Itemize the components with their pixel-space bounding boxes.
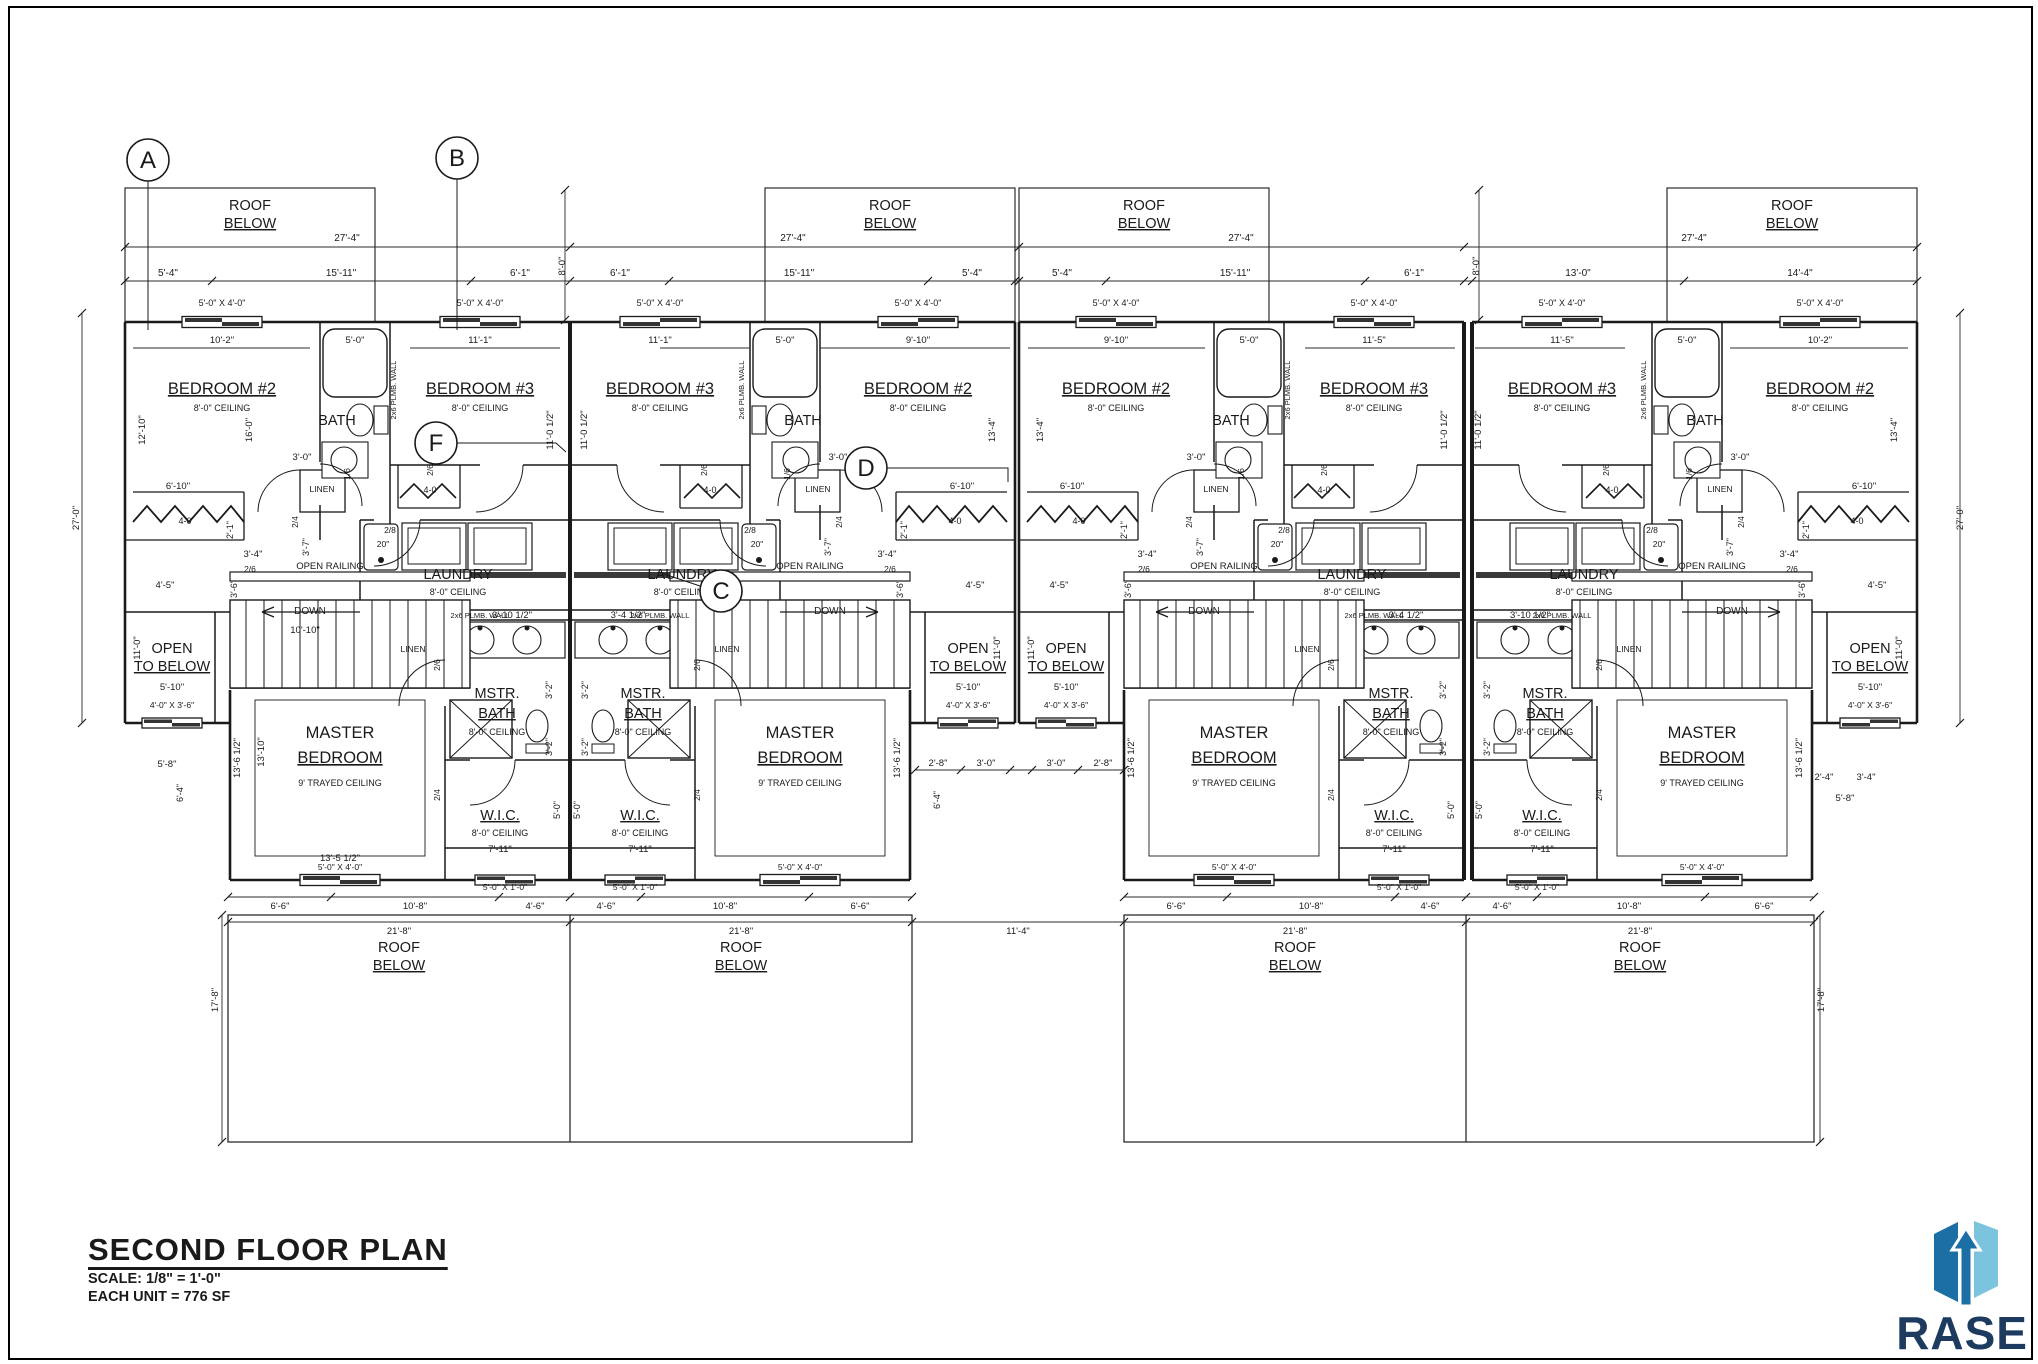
ceiling-note: 9' TRAYED CEILING: [1660, 778, 1743, 788]
dim-label: 3'-2": [580, 738, 590, 756]
dim-label: 7'-11": [628, 844, 652, 855]
dim-label: MSTR.: [474, 686, 519, 702]
dim-label: 2'-1": [1119, 521, 1129, 539]
dim-label: 5'-10": [1054, 682, 1078, 693]
dim-label: 10'-8": [713, 901, 737, 912]
dim-label: 3'-0": [1731, 452, 1750, 463]
dim-label: 6'-6": [271, 901, 290, 912]
room-label: BEDROOM #3: [1508, 380, 1616, 398]
dim-label: 2x6 PLMB. WALL: [451, 611, 510, 620]
roof-below-rects: [228, 915, 1814, 1142]
dim-label: 2/6: [692, 659, 702, 671]
room-label: BEDROOM #3: [606, 380, 714, 398]
room-label: BEDROOM: [1659, 749, 1744, 767]
dim-label: 6'-6": [851, 901, 870, 912]
dim-label: OPEN: [947, 641, 988, 657]
dim-label: 13'-4": [987, 418, 998, 442]
dim-label: 2/4: [432, 789, 442, 801]
dim-label: 3'-2": [580, 681, 590, 699]
room-label: BELOW: [715, 958, 768, 974]
dim-label: ROOF: [1771, 198, 1813, 214]
dim-label: 6'-4": [175, 784, 185, 802]
ceiling-note: 8'-0" CEILING: [1556, 587, 1612, 597]
dim-label: 6'-10": [1852, 481, 1876, 492]
dim-label: 3'-4": [1780, 549, 1799, 560]
dim-label: 2/6: [1319, 464, 1329, 476]
dim-label: LINEN: [714, 644, 739, 654]
dim-label: 10'-8": [1299, 901, 1323, 912]
dim-label: 3'-7": [823, 538, 833, 556]
dim-label: LINEN: [1294, 644, 1319, 654]
dim-label: 5'-8": [158, 759, 177, 770]
dim-label: LAUNDRY: [1317, 567, 1386, 583]
dim-label: 5'-0" X 1'-0": [483, 882, 527, 892]
dim-label: 5'-0" X 4'-0": [318, 862, 362, 872]
dim-label: ROOF: [1619, 940, 1661, 956]
dim-label: 2/6: [1594, 659, 1604, 671]
dim-label: 10'-8": [403, 901, 427, 912]
room-label: W.I.C.: [1522, 808, 1561, 824]
dim-label: 2/8: [744, 525, 756, 535]
dim-label: BATH: [1686, 413, 1724, 429]
dim-label: 11'-1": [468, 335, 492, 346]
dim-label: 4'-0" X 3'-6": [1044, 700, 1088, 710]
dim-label: ROOF: [1274, 940, 1316, 956]
dim-label: 14'-4": [1787, 268, 1813, 279]
dim-label: LINEN: [1616, 644, 1641, 654]
dim-label: 8'-0": [1471, 257, 1482, 276]
dim-label: 4-0: [1317, 485, 1330, 495]
dim-label: 27'-0": [71, 506, 82, 530]
dim-label: 6'-10": [166, 481, 190, 492]
dim-label: 27'-4": [1228, 233, 1254, 244]
room-label: BEDROOM #3: [1320, 380, 1428, 398]
dim-label: 13'-6 1/2": [1794, 738, 1805, 778]
dim-label: 4'-6": [1421, 901, 1440, 912]
dim-label: 1/6: [342, 468, 352, 480]
dim-label: DOWN: [1716, 606, 1748, 617]
dim-label: BATH: [1212, 413, 1250, 429]
dim-label: 5'-0" X 1'-0": [1515, 882, 1559, 892]
dim-label: 3'-0": [1187, 452, 1206, 463]
dim-label: MSTR.: [620, 686, 665, 702]
dim-label: 3'-7": [301, 538, 311, 556]
dim-label: 5'-4": [1052, 268, 1072, 279]
dim-label: 21'-8": [1283, 926, 1307, 937]
ceiling-note: 8'-0" CEILING: [472, 828, 528, 838]
dim-label: 4'-0" X 3'-6": [1848, 700, 1892, 710]
dim-label: 3'-0": [1047, 758, 1066, 769]
dim-label: 21'-8": [387, 926, 411, 937]
dim-label: 3'-6": [1123, 580, 1133, 598]
dim-label: 2/8: [384, 525, 396, 535]
rase-logo-text: RASE: [1828, 1310, 2028, 1356]
room-label: BEDROOM #2: [864, 380, 972, 398]
dim-label: 2/6: [1601, 464, 1611, 476]
ceiling-note: 8'-0" CEILING: [469, 727, 525, 737]
dim-label: OPEN RAILING: [776, 561, 844, 572]
room-label: BATH: [1526, 706, 1564, 722]
dim-label: 2'-1": [225, 521, 235, 539]
dim-label: 2/6: [1326, 659, 1336, 671]
dim-label: 4'-6": [597, 901, 616, 912]
ceiling-note: 8'-0" CEILING: [1534, 403, 1590, 413]
dim-label: 2/8: [1646, 525, 1658, 535]
dim-label: 5'-0" X 4'-0": [1212, 862, 1256, 872]
dim-label: 2/4: [1326, 789, 1336, 801]
dim-label: 11'-0": [992, 636, 1003, 660]
ceiling-note: 8'-0" CEILING: [1517, 727, 1573, 737]
dim-label: 3'-6": [229, 580, 239, 598]
dim-label: 3'-4": [1138, 549, 1157, 560]
dim-label: 5'-0" X 4'-0": [895, 298, 942, 308]
dim-label: 5'-0" X 1'-0": [613, 882, 657, 892]
room-label: BELOW: [864, 216, 917, 232]
dim-label: 4'-6": [1493, 901, 1512, 912]
dim-label: 2/6: [425, 464, 435, 476]
dim-label: 16'-0": [244, 418, 255, 442]
room-label: BELOW: [1269, 958, 1322, 974]
dim-label: 11'-0": [132, 636, 143, 660]
dim-label: 11'-1": [648, 335, 672, 346]
ceiling-note: 8'-0" CEILING: [1792, 403, 1848, 413]
ceiling-note: 8'-0" CEILING: [1366, 828, 1422, 838]
dim-label: 6'-1": [1404, 268, 1424, 279]
dim-label: 2x6 PLMB. WALL: [1639, 361, 1648, 420]
dim-label: 12'-10": [137, 415, 148, 444]
marker-leader-line: [887, 468, 1008, 482]
dim-label: ROOF: [869, 198, 911, 214]
dim-label: 3'-0": [293, 452, 312, 463]
dim-label: 11'-0 1/2": [1473, 410, 1484, 449]
dim-label: 27'-0": [1955, 506, 1966, 530]
room-label: TO BELOW: [1832, 659, 1909, 675]
dim-label: 11'-0 1/2": [1439, 410, 1450, 449]
room-label: BEDROOM #2: [168, 380, 276, 398]
dim-label: 4'-5": [156, 580, 175, 591]
rase-logo: RASE: [1828, 1216, 2028, 1356]
dim-label: 1/6: [1236, 468, 1246, 480]
dim-label: 11'-5": [1362, 335, 1386, 346]
room-label: BEDROOM #2: [1766, 380, 1874, 398]
dim-label: 5'-0" X 1'-0": [1377, 882, 1421, 892]
dim-label: 10'-2": [1808, 335, 1832, 346]
room-label: W.I.C.: [620, 808, 659, 824]
ceiling-note: 9' TRAYED CEILING: [1192, 778, 1275, 788]
dim-label: 10'-10": [290, 625, 319, 636]
dim-label: 20": [1271, 539, 1283, 549]
dim-label: LINEN: [400, 644, 425, 654]
dim-label: 2/6: [884, 564, 896, 574]
dim-label: 2/6: [699, 464, 709, 476]
room-label: BATH: [478, 706, 516, 722]
dim-label: 6'-10": [1060, 481, 1084, 492]
dim-label: DOWN: [294, 606, 326, 617]
dim-label: 15'-11": [1220, 268, 1251, 279]
ceiling-note: 8'-0" CEILING: [1514, 828, 1570, 838]
dim-label: 9'-10": [1104, 335, 1128, 346]
dim-label: 11'-0 1/2": [545, 410, 556, 449]
dim-label: LINEN: [1707, 484, 1732, 494]
dim-label: 2x6 PLMB. WALL: [737, 361, 746, 420]
ceiling-note: 8'-0" CEILING: [1324, 587, 1380, 597]
dim-label: 3'-2": [1438, 681, 1448, 699]
dim-label: 17'-8": [1816, 988, 1827, 1012]
room-label: BELOW: [373, 958, 426, 974]
dim-label: 3'-0": [829, 452, 848, 463]
dim-label: 2'-1": [899, 521, 909, 539]
room-label: BELOW: [1766, 216, 1819, 232]
section-marker-letter: C: [712, 578, 729, 605]
dim-label: BATH: [318, 413, 356, 429]
dim-label: 27'-4": [1681, 233, 1707, 244]
ceiling-note: 8'-0" CEILING: [615, 727, 671, 737]
room-label: BEDROOM #2: [1062, 380, 1170, 398]
dim-label: 2x6 PLMB. WALL: [1345, 611, 1404, 620]
dim-label: 3'-2": [1482, 738, 1492, 756]
dim-label: MSTR.: [1368, 686, 1413, 702]
dim-label: 2x6 PLMB. WALL: [389, 361, 398, 420]
dim-label: 7'-11": [1382, 844, 1406, 855]
dim-label: 3'-6": [895, 580, 905, 598]
dim-label: 5'-0": [1678, 335, 1697, 346]
dim-label: 2'-4": [1815, 772, 1834, 783]
dim-label: 2x6 PLMB. WALL: [631, 611, 690, 620]
dim-label: 5'-0" X 4'-0": [637, 298, 684, 308]
dim-label: 6'-6": [1167, 901, 1186, 912]
dim-label: 10'-2": [210, 335, 234, 346]
dim-label: 5'-0": [572, 801, 582, 819]
dim-label: 15'-11": [784, 268, 815, 279]
room-label: TO BELOW: [134, 659, 211, 675]
dim-label: 4-0: [1850, 516, 1863, 526]
dim-label: 5'-0": [1474, 801, 1484, 819]
dim-label: 4'-6": [526, 901, 545, 912]
dim-label: OPEN RAILING: [296, 561, 364, 572]
floor-plan-drawing: ROOFBELOWROOFBELOWROOFBELOWROOFBELOWROOF…: [0, 0, 2038, 1364]
dim-label: 3'-4": [878, 549, 897, 560]
dim-label: LINEN: [805, 484, 830, 494]
dim-label: 13'-6 1/2": [232, 738, 243, 778]
dim-label: 2/6: [1786, 564, 1798, 574]
dim-label: 1/6: [1684, 468, 1694, 480]
dim-label: 5'-0" X 4'-0": [1351, 298, 1398, 308]
dim-label: 4'-5": [966, 580, 985, 591]
dim-label: 4-0: [703, 485, 716, 495]
room-label: TO BELOW: [1028, 659, 1105, 675]
dim-label: 20": [1653, 539, 1665, 549]
dim-label: 2/4: [1594, 789, 1604, 801]
dim-label: 3'-2": [1482, 681, 1492, 699]
dim-label: MASTER: [766, 724, 835, 742]
room-label: W.I.C.: [480, 808, 519, 824]
dim-label: MASTER: [1200, 724, 1269, 742]
section-marker-letter: D: [857, 455, 874, 482]
dim-label: 5'-0" X 4'-0": [199, 298, 246, 308]
room-label: BATH: [1372, 706, 1410, 722]
dim-label: 6'-10": [950, 481, 974, 492]
room-label: BELOW: [224, 216, 277, 232]
section-marker-letter: A: [140, 147, 156, 174]
dim-label: 21'-8": [729, 926, 753, 937]
dim-label: 5'-0" X 4'-0": [1539, 298, 1586, 308]
dim-label: 3'-7": [1195, 538, 1205, 556]
dim-label: 10'-8": [1617, 901, 1641, 912]
dim-label: MASTER: [306, 724, 375, 742]
dim-label: 27'-4": [334, 233, 360, 244]
ceiling-note: 8'-0" CEILING: [430, 587, 486, 597]
dim-label: 5'-0": [552, 801, 562, 819]
dim-label: 4'-0" X 3'-6": [946, 700, 990, 710]
dim-label: MSTR.: [1522, 686, 1567, 702]
dim-label: 5'-8": [1836, 793, 1855, 804]
dim-label: LAUNDRY: [1549, 567, 1618, 583]
dim-label: 20": [751, 539, 763, 549]
dim-label: ROOF: [1123, 198, 1165, 214]
room-label: BEDROOM: [1191, 749, 1276, 767]
ceiling-note: 8'-0" CEILING: [612, 828, 668, 838]
title-block: SECOND FLOOR PLAN SCALE: 1/8" = 1'-0" EA…: [88, 1232, 448, 1306]
dim-label: 5'-10": [1858, 682, 1882, 693]
dim-label: 2/4: [290, 516, 300, 528]
dim-label: 6'-6": [1755, 901, 1774, 912]
room-label: BEDROOM #3: [426, 380, 534, 398]
section-marker-letter: B: [449, 145, 465, 172]
dim-label: OPEN: [1045, 641, 1086, 657]
dim-label: 2/4: [834, 516, 844, 528]
dim-label: 5'-0": [346, 335, 365, 346]
room-label: W.I.C.: [1374, 808, 1413, 824]
dim-label: 6'-1": [510, 268, 530, 279]
dim-label: OPEN: [151, 641, 192, 657]
dim-label: 11'-0": [1026, 636, 1037, 660]
dim-label: 13'-10": [256, 737, 267, 766]
dim-label: 1/6: [782, 468, 792, 480]
ceiling-note: 9' TRAYED CEILING: [758, 778, 841, 788]
dim-label: 2/4: [1184, 516, 1194, 528]
dim-label: 5'-10": [160, 682, 184, 693]
dim-label: 4-0: [1605, 485, 1618, 495]
dim-label: 3'-0": [977, 758, 996, 769]
dim-label: 5'-0": [1240, 335, 1259, 346]
dim-label: 6'-4": [932, 791, 942, 809]
dim-label: 4'-5": [1868, 580, 1887, 591]
dim-label: BATH: [784, 413, 822, 429]
dim-label: LINEN: [309, 484, 334, 494]
dim-label: 5'-0": [1446, 801, 1456, 819]
dim-label: 20": [377, 539, 389, 549]
dim-label: DOWN: [1188, 606, 1220, 617]
dim-label: 27'-4": [780, 233, 806, 244]
rase-logo-icon: [1924, 1216, 2008, 1308]
dim-label: 5'-0" X 4'-0": [1093, 298, 1140, 308]
dim-label: OPEN RAILING: [1678, 561, 1746, 572]
dim-label: OPEN RAILING: [1190, 561, 1258, 572]
dim-label: 21'-8": [1628, 926, 1652, 937]
dim-label: 2/4: [1736, 516, 1746, 528]
room-label: BEDROOM: [757, 749, 842, 767]
dim-label: 4-0: [423, 485, 436, 495]
dim-label: ROOF: [229, 198, 271, 214]
dim-label: 11'-0": [1894, 636, 1905, 660]
room-label: BATH: [624, 706, 662, 722]
dim-label: 13'-4": [1035, 418, 1046, 442]
drawing-sheet: ROOFBELOWROOFBELOWROOFBELOWROOFBELOWROOF…: [0, 0, 2038, 1364]
dim-label: 2'-8": [1094, 758, 1113, 769]
dim-label: 3'-2": [544, 681, 554, 699]
dim-label: LAUNDRY: [423, 567, 492, 583]
dim-label: 6'-1": [610, 268, 630, 279]
dim-label: 2/6: [432, 659, 442, 671]
ceiling-note: 8'-0" CEILING: [452, 403, 508, 413]
dim-label: 11'-5": [1550, 335, 1574, 346]
dim-label: ROOF: [720, 940, 762, 956]
dim-label: LINEN: [1203, 484, 1228, 494]
dim-label: 3'-4": [244, 549, 263, 560]
dim-label: 2/6: [244, 564, 256, 574]
room-label: TO BELOW: [930, 659, 1007, 675]
dim-label: 3'-6": [1797, 580, 1807, 598]
dim-label: 5'-4": [962, 268, 982, 279]
dim-label: 3'-2": [1438, 738, 1448, 756]
dim-label: 4'-5": [1050, 580, 1069, 591]
dim-label: 2x6 PLMB. WALL: [1283, 361, 1292, 420]
dim-label: 2/8: [1278, 525, 1290, 535]
dim-label: 15'-11": [326, 268, 357, 279]
ceiling-note: 8'-0" CEILING: [194, 403, 250, 413]
room-label: BEDROOM: [297, 749, 382, 767]
area-note: EACH UNIT = 776 SF: [88, 1288, 448, 1306]
dim-label: 5'-0" X 4'-0": [1680, 862, 1724, 872]
dim-label: 2/6: [1138, 564, 1150, 574]
dim-label: 13'-0": [1565, 268, 1591, 279]
dim-label: 3'-7": [1725, 538, 1735, 556]
dim-label: 5'-0" X 4'-0": [778, 862, 822, 872]
dim-label: 4-0: [1072, 516, 1085, 526]
dim-label: MASTER: [1668, 724, 1737, 742]
dim-label: DOWN: [814, 606, 846, 617]
dim-label: 4'-0" X 3'-6": [150, 700, 194, 710]
dim-label: 13'-6 1/2": [1126, 738, 1137, 778]
dim-label: 4-0: [948, 516, 961, 526]
dim-label: 8'-0": [557, 257, 568, 276]
dim-label: 5'-0" X 4'-0": [457, 298, 504, 308]
page-title: SECOND FLOOR PLAN: [88, 1232, 448, 1268]
dim-label: 5'-10": [956, 682, 980, 693]
ceiling-note: 8'-0" CEILING: [632, 403, 688, 413]
dim-label: 2'-1": [1801, 521, 1811, 539]
dim-label: 3'-4": [1857, 772, 1876, 783]
dim-label: 11'-0 1/2": [579, 410, 590, 449]
dim-label: 2'-8": [929, 758, 948, 769]
dim-label: 11'-4": [1006, 926, 1030, 937]
dim-label: 7'-11": [1530, 844, 1554, 855]
dim-label: 2x6 PLMB. WALL: [1533, 611, 1592, 620]
ceiling-note: 8'-0" CEILING: [1363, 727, 1419, 737]
dim-label: 5'-4": [158, 268, 178, 279]
section-marker-letter: F: [429, 430, 444, 457]
dim-label: 13'-6 1/2": [892, 738, 903, 778]
dim-label: 13'-4": [1889, 418, 1900, 442]
dim-label: ROOF: [378, 940, 420, 956]
dim-label: 9'-10": [906, 335, 930, 346]
scale-note: SCALE: 1/8" = 1'-0": [88, 1270, 448, 1288]
room-label: BELOW: [1118, 216, 1171, 232]
dim-label: 17'-8": [210, 988, 221, 1012]
ceiling-note: 8'-0" CEILING: [1346, 403, 1402, 413]
dim-label: 4-0: [178, 516, 191, 526]
ceiling-note: 8'-0" CEILING: [890, 403, 946, 413]
